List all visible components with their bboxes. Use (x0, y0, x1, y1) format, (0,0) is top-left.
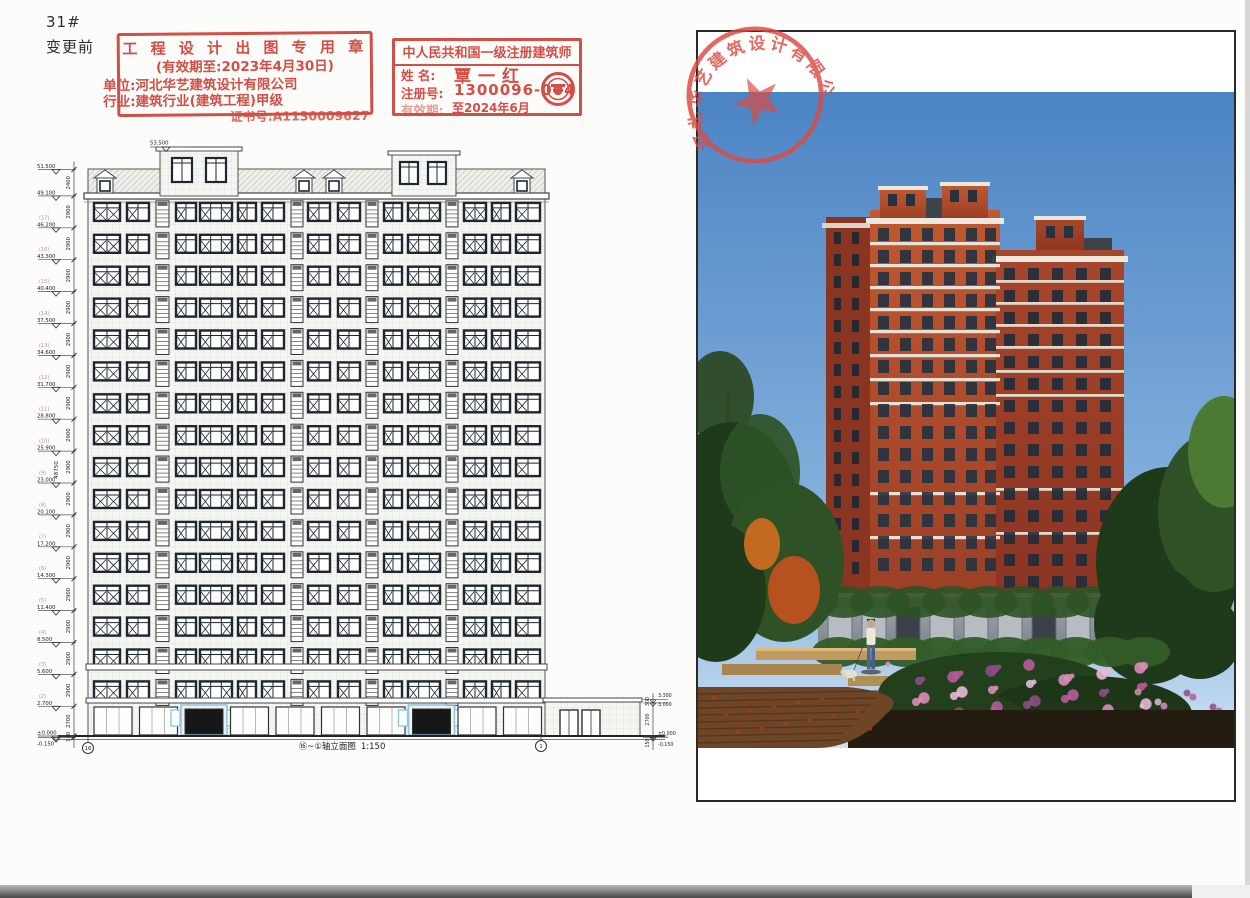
svg-text:(10): (10) (39, 439, 49, 445)
svg-text:±0.000: ±0.000 (658, 731, 676, 737)
svg-text:(17): (17) (39, 215, 49, 221)
svg-text:(13): (13) (39, 343, 49, 349)
svg-text:(12): (12) (39, 375, 49, 381)
svg-text:2900: 2900 (66, 555, 72, 569)
scan-bottom-edge (0, 885, 1250, 898)
elevation-title: ⑯~①轴立面图1:150 (252, 740, 432, 752)
svg-text:(3): (3) (39, 662, 46, 668)
elevation-title-text: ⑯~①轴立面图 (299, 742, 356, 752)
svg-text:2900: 2900 (66, 236, 72, 250)
svg-text:2900: 2900 (66, 651, 72, 665)
svg-text:8.500: 8.500 (37, 637, 53, 643)
architect-stamp: 中人民共和国一级注册建筑师 姓 名: 覃一红 注册号: 1300096-004 … (392, 38, 582, 116)
svg-text:2900: 2900 (66, 428, 72, 442)
svg-text:2900: 2900 (66, 332, 72, 346)
svg-text:25.900: 25.900 (37, 446, 56, 452)
svg-text:(9): (9) (39, 471, 46, 477)
svg-text:51.500: 51.500 (37, 164, 56, 170)
svg-text:2900: 2900 (66, 619, 72, 633)
svg-text:31.700: 31.700 (37, 382, 56, 388)
svg-text:20.100: 20.100 (37, 509, 56, 515)
svg-text:2900: 2900 (66, 523, 72, 537)
svg-text:2.700: 2.700 (37, 701, 53, 707)
drawing-sheet: 31# 变更前 工 程 设 计 出 图 专 用 章 (有效期至:2023年4月3… (0, 0, 1250, 898)
svg-text:46.200: 46.200 (37, 222, 56, 228)
svg-text:53.500: 53.500 (150, 141, 169, 147)
svg-text:2900: 2900 (66, 460, 72, 474)
svg-text:14.300: 14.300 (37, 573, 56, 579)
scan-right-edge (1245, 0, 1250, 885)
scan-bottom-edge-cut (1192, 885, 1250, 898)
registration-emblem-icon (540, 71, 576, 107)
svg-text:(2): (2) (39, 694, 46, 700)
svg-text:40.400: 40.400 (37, 286, 56, 292)
drawing-number: 31# (46, 13, 81, 31)
svg-text:17.200: 17.200 (37, 541, 56, 547)
revision-label: 变更前 (46, 36, 94, 57)
svg-text:1: 1 (539, 744, 543, 750)
stamp-cert-no: 证书号:A1130009627 (230, 105, 369, 125)
seal-star-icon (725, 68, 788, 130)
svg-text:(6): (6) (39, 566, 46, 572)
svg-text:2400: 2400 (66, 175, 72, 189)
svg-text:34.600: 34.600 (37, 350, 56, 356)
svg-text:(7): (7) (39, 534, 46, 540)
svg-text:2900: 2900 (66, 396, 72, 410)
svg-text:43.300: 43.300 (37, 254, 56, 260)
svg-text:2900: 2900 (66, 204, 72, 218)
svg-text:-0.150: -0.150 (37, 742, 55, 748)
svg-text:5.600: 5.600 (37, 669, 53, 675)
design-institute-stamp: 工 程 设 计 出 图 专 用 章 (有效期至:2023年4月30日) 单位:河… (103, 29, 376, 119)
svg-text:23.000: 23.000 (37, 478, 56, 484)
svg-text:河北华艺建筑设计有限公司: 河北华艺建筑设计有限公司 (631, 0, 842, 174)
svg-text:3.300: 3.300 (658, 693, 672, 699)
svg-text:(8): (8) (39, 502, 46, 508)
svg-text:150: 150 (66, 731, 72, 742)
svg-text:150: 150 (645, 738, 651, 747)
building-rendering-image (698, 92, 1234, 748)
svg-text:11.400: 11.400 (37, 605, 56, 611)
svg-text:37.500: 37.500 (37, 318, 56, 324)
valid-until: 至2024年6月 (452, 99, 530, 116)
svg-text:(5): (5) (39, 598, 46, 604)
svg-text:(11): (11) (39, 407, 49, 413)
svg-text:2700: 2700 (645, 713, 651, 725)
svg-text:300: 300 (645, 697, 651, 706)
svg-text:2700: 2700 (66, 714, 72, 728)
svg-text:(16): (16) (39, 247, 49, 253)
elevation-scale: 1:150 (361, 742, 386, 752)
svg-text:2900: 2900 (66, 364, 72, 378)
svg-text:28.800: 28.800 (37, 414, 56, 420)
svg-text:2900: 2900 (66, 300, 72, 314)
svg-text:(4): (4) (39, 630, 46, 636)
svg-text:2900: 2900 (66, 492, 72, 506)
svg-text:48750: 48750 (54, 461, 60, 479)
svg-text:2900: 2900 (66, 587, 72, 601)
svg-text:16: 16 (85, 746, 92, 752)
svg-text:(15): (15) (39, 279, 49, 285)
svg-text:2900: 2900 (66, 268, 72, 282)
svg-text:49.100: 49.100 (37, 190, 56, 196)
valid-label: 有效期: (401, 100, 444, 119)
svg-text:-0.150: -0.150 (658, 742, 673, 748)
svg-text:3.000: 3.000 (658, 702, 672, 708)
svg-text:(14): (14) (39, 311, 49, 317)
svg-text:2900: 2900 (66, 683, 72, 697)
svg-text:±0.000: ±0.000 (37, 731, 57, 737)
name-label: 姓 名: (401, 65, 435, 84)
